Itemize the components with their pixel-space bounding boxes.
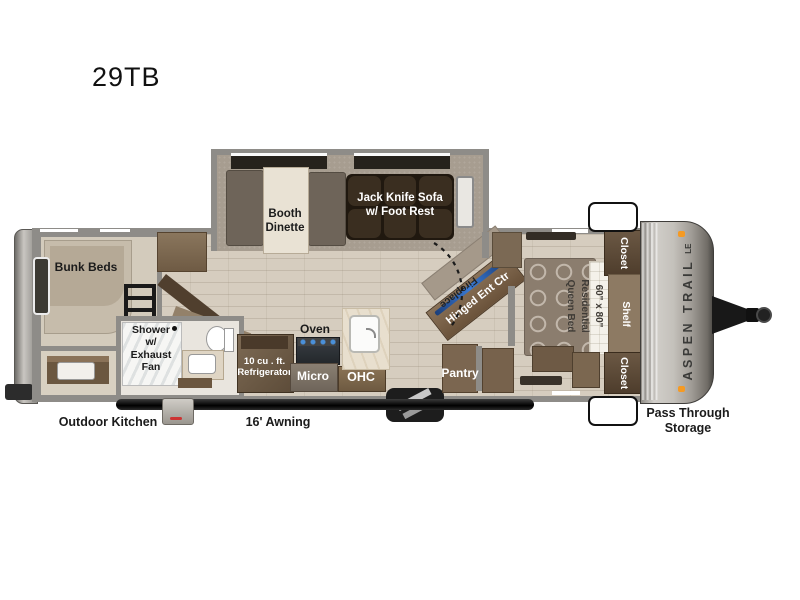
bedroom-door — [588, 202, 638, 232]
hitch-jack-icon — [757, 308, 771, 322]
bunk-window-icon — [33, 257, 50, 315]
bunk-beds-label: Bunk Beds — [42, 260, 130, 274]
brand-mark: ASPEN TRAIL LE — [679, 227, 697, 397]
bedroom-wall-stub — [482, 232, 489, 258]
floorplan-canvas: 29TB Booth Dinette Jack Knife Sofa w/ Fo… — [0, 0, 800, 600]
outdoor-kitchen-latch — [170, 417, 182, 420]
shower-label: Shower w/ Exhaust Fan — [122, 324, 180, 374]
floorplan-title: 29TB — [92, 62, 222, 94]
front-cap-ridges — [642, 223, 658, 400]
awning-label: 16' Awning — [218, 415, 338, 430]
outdoor-kitchen-sink-icon — [57, 362, 95, 380]
bed-shelf: Shelf — [608, 274, 644, 354]
pass-through-storage-label: Pass Through Storage — [632, 406, 744, 436]
bedroom-overhead-mat — [526, 232, 576, 240]
bedroom-mat — [520, 376, 562, 385]
closet-top: Closet — [604, 230, 644, 276]
bunk-mattress — [50, 246, 124, 306]
bunk-ladder-icon — [124, 284, 156, 316]
booth-dinette-label: Booth Dinette — [255, 208, 315, 235]
micro-label: Micro — [290, 369, 336, 383]
jack-knife-sofa-label: Jack Knife Sofa w/ Foot Rest — [342, 192, 458, 219]
bedroom-dresser — [492, 232, 522, 268]
bath-sink-icon — [188, 354, 216, 374]
toilet-tank — [224, 328, 234, 352]
hall-cabinet — [157, 232, 207, 272]
brand-name: ASPEN TRAIL — [681, 259, 695, 381]
pass-through-door — [588, 396, 638, 426]
pantry-cabinet-2 — [482, 348, 514, 393]
oven-label: Oven — [290, 322, 340, 336]
refrigerator-top — [241, 336, 288, 349]
brand-badge: LE — [684, 243, 693, 253]
ohc-label: OHC — [338, 370, 384, 385]
shelf-label: Shelf — [620, 301, 632, 327]
rear-bumper — [5, 384, 33, 400]
bath-cabinet — [178, 378, 212, 388]
hitch-coupler — [746, 308, 759, 322]
pantry-label: Pantry — [440, 366, 480, 380]
slide-window-icon-2 — [354, 153, 450, 169]
bedroom-wall — [508, 286, 515, 346]
refrigerator-label: 10 cu . ft. Refrigerator — [236, 356, 293, 378]
hitch-tongue — [712, 296, 750, 334]
bed-foot-dresser — [532, 346, 574, 372]
slide-side-window-icon — [456, 176, 474, 228]
closet-top-label: Closet — [618, 237, 630, 269]
outdoor-kitchen-label: Outdoor Kitchen — [48, 415, 168, 430]
closet-bottom: Closet — [604, 352, 644, 394]
bottom-wall-window — [552, 391, 580, 395]
closet-bottom-label: Closet — [618, 357, 630, 389]
bed-foot-dresser-2 — [572, 352, 600, 388]
range-burners — [298, 338, 336, 346]
